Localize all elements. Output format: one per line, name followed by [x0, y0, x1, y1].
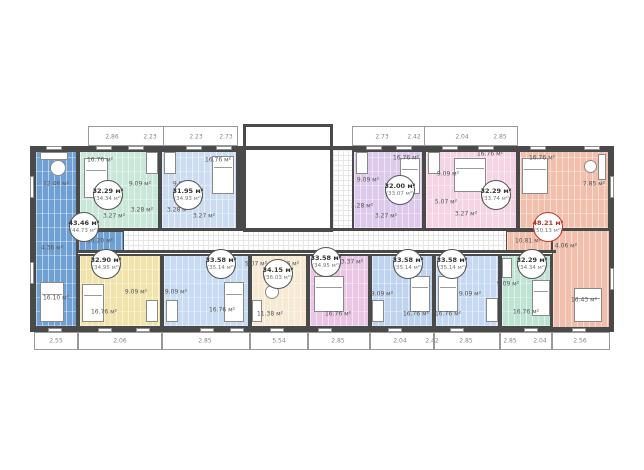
window — [48, 328, 62, 332]
balcony-divider — [424, 127, 425, 145]
apartment-area-badge[interactable]: 32.29 м²(34.34 м²) — [93, 180, 123, 210]
apartment-area: 33.58 м² — [311, 255, 342, 262]
apartment-area: 33.58 м² — [393, 257, 424, 264]
bed — [522, 158, 548, 194]
apartment-area-badge[interactable]: 33.58 м²(34.95 м²) — [311, 247, 341, 277]
window — [318, 328, 332, 332]
window — [572, 328, 586, 332]
window — [136, 328, 150, 332]
window — [128, 146, 144, 150]
apartment-total-area: (35.14 м²) — [207, 265, 235, 271]
balcony-divider — [163, 127, 164, 145]
bed — [40, 282, 64, 322]
apartment-total-area: (35.14 м²) — [394, 265, 422, 271]
dimension-label: 2.85 — [503, 338, 516, 345]
dimension-label: 2.23 — [143, 134, 156, 141]
room-area-label: 16.76 м² — [393, 155, 419, 162]
apartment-area: 32.29 м² — [93, 188, 124, 195]
bed — [314, 276, 344, 312]
window — [478, 146, 494, 150]
window — [396, 146, 412, 150]
floor-plan: 12.46 м²4.36 м²10.20 м²16.10 м²43.46 м²(… — [0, 0, 644, 470]
apartment-area-badge[interactable]: 33.58 м²(35.14 м²) — [437, 249, 467, 279]
window — [450, 328, 464, 332]
window — [388, 328, 402, 332]
bed — [224, 282, 244, 322]
window — [30, 262, 34, 284]
room-area-label: 16.76 м² — [477, 151, 503, 158]
room-area-label: 3.27 м² — [193, 213, 215, 220]
window — [610, 176, 614, 198]
window — [200, 328, 214, 332]
room-area-label: 9.09 м² — [459, 291, 481, 298]
apartment-area: 34.15 м² — [263, 267, 294, 274]
apartment-area: 32.90 м² — [91, 257, 122, 264]
room-area-label: 5.07 м² — [435, 199, 457, 206]
room-area-label: 16.76 м² — [403, 311, 429, 318]
room-area-label: 3.28 м² — [351, 203, 373, 210]
apartment-area-badge[interactable]: 43.46 м²(44.73 м²) — [69, 212, 99, 242]
room-area-label: 3.27 м² — [455, 211, 477, 218]
room-area-label: 16.76 м² — [435, 311, 461, 318]
kitchen-counter — [164, 152, 176, 174]
window — [98, 328, 112, 332]
dimension-label: 2.04 — [393, 338, 406, 345]
apartment-area-badge[interactable]: 33.58 м²(35.14 м²) — [206, 249, 236, 279]
kitchen-counter — [40, 152, 68, 160]
wall — [238, 150, 243, 230]
dimension-label: 2.23 — [189, 134, 202, 141]
apartment-area: 32.29 м² — [481, 188, 512, 195]
apartment-area-badge[interactable]: 34.15 м²(36.03 м²) — [263, 259, 293, 289]
dimension-label: 2.85 — [493, 134, 506, 141]
window — [46, 146, 62, 150]
bed — [410, 276, 430, 312]
apartment-area-badge[interactable]: 32.29 м²(34.34 м²) — [517, 249, 547, 279]
stair-core — [243, 124, 333, 232]
apartment-area: 32.00 м² — [385, 183, 416, 190]
dimension-label: 5.54 — [272, 338, 285, 345]
dimension-label: 2.06 — [113, 338, 126, 345]
apartment-area-badge[interactable]: 32.90 м²(34.95 м²) — [91, 249, 121, 279]
window — [270, 328, 284, 332]
dining-table — [584, 160, 597, 173]
room-area-label: 3.27 м² — [375, 213, 397, 220]
apartment-area-badge[interactable]: 32.29 м²(33.74 м²) — [481, 180, 511, 210]
dimension-label: 2.85 — [198, 338, 211, 345]
apartment-total-area: (35.14 м²) — [438, 265, 466, 271]
window — [442, 146, 458, 150]
apartment-total-area: (34.95 м²) — [92, 265, 120, 271]
apartment-area-badge[interactable]: 33.58 м²(35.14 м²) — [393, 249, 423, 279]
dimension-label: 2.42 — [425, 338, 438, 345]
dimension-label: 2.56 — [573, 338, 586, 345]
dimension-label: 2.73 — [375, 134, 388, 141]
window — [186, 146, 202, 150]
dimension-label: 2.86 — [105, 134, 118, 141]
room-area-label: 10.81 м² — [515, 238, 541, 245]
apartment-area: 33.58 м² — [437, 257, 468, 264]
kitchen-counter — [486, 298, 498, 322]
room-area-label: 11.38 м² — [257, 311, 283, 318]
room-area-label: 9.09 м² — [125, 289, 147, 296]
room-area-label: 4.36 м² — [41, 245, 63, 252]
apartment-total-area: (34.34 м²) — [518, 265, 546, 271]
dimension-label: 2.55 — [49, 338, 62, 345]
room-area-label: 9.09 м² — [437, 171, 459, 178]
dimension-label: 2.73 — [219, 134, 232, 141]
room-area-label: 9.09 м² — [497, 281, 519, 288]
entrance-lobby — [333, 150, 352, 231]
bed — [438, 276, 458, 312]
window — [530, 146, 546, 150]
kitchen-counter — [146, 300, 158, 322]
room-area-label: 16.76 м² — [205, 157, 231, 164]
room-area-label: 16.76 м² — [209, 307, 235, 314]
bed — [82, 284, 104, 322]
apartment-area: 48.21 м² — [533, 220, 564, 227]
room-area-label: 7.85 м² — [583, 181, 605, 188]
window — [230, 328, 244, 332]
apartment-total-area: (34.34 м²) — [94, 196, 122, 202]
apartment-area-badge[interactable]: 31.95 м²(34.93 м²) — [173, 180, 203, 210]
apartment-total-area: (33.74 м²) — [482, 196, 510, 202]
apartment-total-area: (34.95 м²) — [312, 263, 340, 269]
kitchen-counter — [372, 300, 384, 322]
window — [584, 146, 600, 150]
apartment-area-badge[interactable]: 32.00 м²(33.07 м²) — [385, 175, 415, 205]
dimension-label: 2.42 — [407, 134, 420, 141]
window — [96, 146, 112, 150]
window — [524, 328, 538, 332]
apartment-total-area: (34.93 м²) — [174, 196, 202, 202]
apartment-total-area: (33.07 м²) — [386, 191, 414, 197]
room-area-label: 9.09 м² — [357, 177, 379, 184]
dimension-label: 2.04 — [533, 338, 546, 345]
window — [366, 146, 382, 150]
wall — [30, 146, 34, 332]
kitchen-counter — [356, 152, 368, 174]
room-area-label: 16.76 м² — [91, 309, 117, 316]
kitchen-counter — [598, 154, 606, 180]
room-area-label: 3.37 м² — [341, 259, 363, 266]
apartment-total-area: (44.73 м²) — [70, 228, 98, 234]
room-area-label: 3.28 м² — [131, 207, 153, 214]
window — [216, 146, 232, 150]
wall — [30, 146, 614, 150]
room-area-label: 3.27 м² — [103, 213, 125, 220]
dining-table — [50, 160, 66, 176]
apartment-total-area: (36.03 м²) — [264, 275, 292, 281]
room-area-label: 12.46 м² — [43, 181, 69, 188]
room-area-label: 16.10 м² — [43, 295, 69, 302]
room-area-label: 4.06 м² — [555, 243, 577, 250]
apartment-area: 43.46 м² — [69, 220, 100, 227]
room-area-label: 9.09 м² — [371, 291, 393, 298]
apartment-total-area: (50.13 м²) — [534, 228, 562, 234]
apartment-area: 32.29 м² — [517, 257, 548, 264]
bed — [574, 288, 602, 322]
kitchen-counter — [166, 300, 178, 322]
apartment-area-badge[interactable]: 48.21 м²(50.13 м²) — [533, 212, 563, 242]
kitchen-counter — [502, 258, 512, 278]
wall — [610, 146, 614, 332]
dimension-label: 2.85 — [331, 338, 344, 345]
window — [30, 176, 34, 198]
room-area-label: 16.76 м² — [513, 309, 539, 316]
dimension-label: 2.85 — [459, 338, 472, 345]
dimension-label: 2.04 — [455, 134, 468, 141]
room-area-label: 16.43 м² — [571, 297, 597, 304]
kitchen-counter — [146, 152, 158, 174]
room-area-label: 16.76 м² — [529, 155, 555, 162]
corridor — [78, 231, 556, 251]
apartment-area: 33.58 м² — [206, 257, 237, 264]
room-area-label: 9.09 м² — [165, 289, 187, 296]
wall — [78, 228, 556, 231]
room-area-label: 16.76 м² — [325, 311, 351, 318]
window — [610, 268, 614, 290]
room-area-label: 9.09 м² — [129, 181, 151, 188]
room-area-label: 16.76 м² — [87, 157, 113, 164]
apartment-area: 31.95 м² — [173, 188, 204, 195]
